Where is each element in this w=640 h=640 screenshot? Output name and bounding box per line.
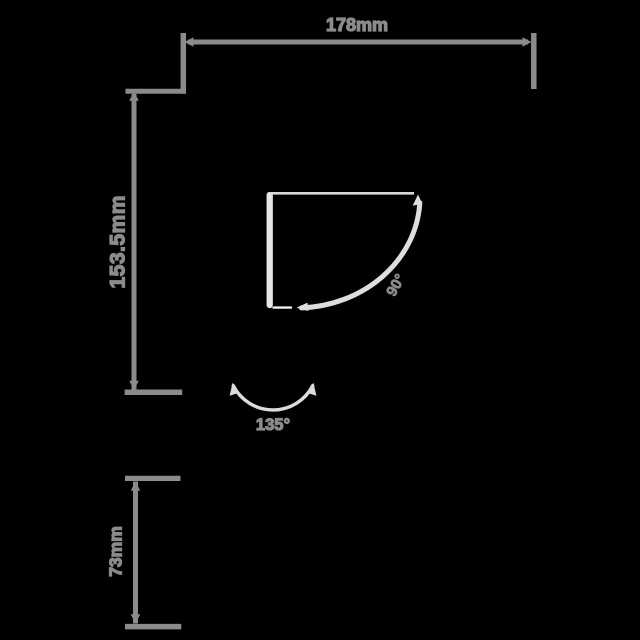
svg-text:73mm: 73mm (106, 526, 126, 577)
svg-text:178mm: 178mm (326, 15, 388, 35)
svg-text:135°: 135° (256, 416, 290, 434)
svg-text:153.5mm: 153.5mm (107, 195, 130, 288)
